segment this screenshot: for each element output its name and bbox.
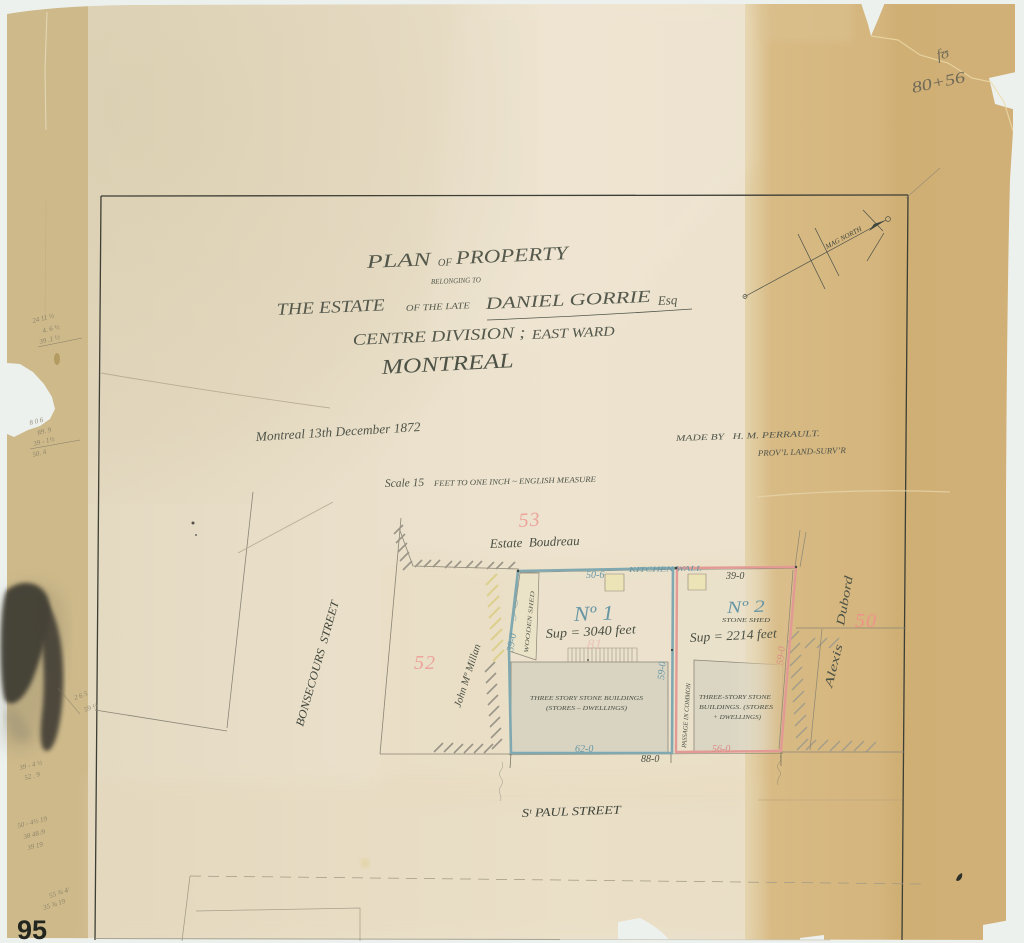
svg-text:56-0: 56-0 [712, 744, 730, 755]
svg-text:KITCHEN WALL: KITCHEN WALL [627, 564, 702, 574]
svg-text:OF: OF [438, 257, 453, 269]
svg-text:THREE-STORY STONE: THREE-STORY STONE [699, 695, 771, 701]
svg-text:Estate Boudreau: Estate Boudreau [489, 533, 581, 551]
svg-text:(STORES ‒ DWELLINGS): (STORES ‒ DWELLINGS) [546, 705, 627, 712]
svg-text:Esq: Esq [656, 292, 678, 308]
svg-text:95: 95 [17, 915, 47, 943]
svg-text:59-0: 59-0 [656, 661, 669, 680]
svg-text:Nº 2: Nº 2 [725, 597, 766, 617]
svg-text:+ DWELLINGS): + DWELLINGS) [713, 714, 761, 721]
svg-text:BELONGING TO: BELONGING TO [431, 275, 482, 286]
svg-text:52: 52 [414, 652, 436, 674]
svg-text:81: 81 [587, 637, 602, 653]
svg-text:39-0: 39-0 [725, 571, 744, 582]
svg-text:62-0: 62-0 [575, 744, 593, 755]
svg-text:88-0: 88-0 [641, 754, 659, 765]
svg-text:Scale 15: Scale 15 [385, 477, 425, 490]
svg-text:THREE STORY STONE BUILDINGS: THREE STORY STONE BUILDINGS [530, 696, 643, 702]
svg-text:BUILDINGS. (STORES: BUILDINGS. (STORES [699, 704, 773, 711]
svg-text:50: 50 [855, 610, 877, 632]
svg-text:STONE SHED: STONE SHED [722, 617, 770, 624]
svg-text:PLAN: PLAN [365, 249, 433, 273]
svg-text:50-6: 50-6 [586, 570, 604, 581]
svg-text:53: 53 [518, 509, 541, 532]
